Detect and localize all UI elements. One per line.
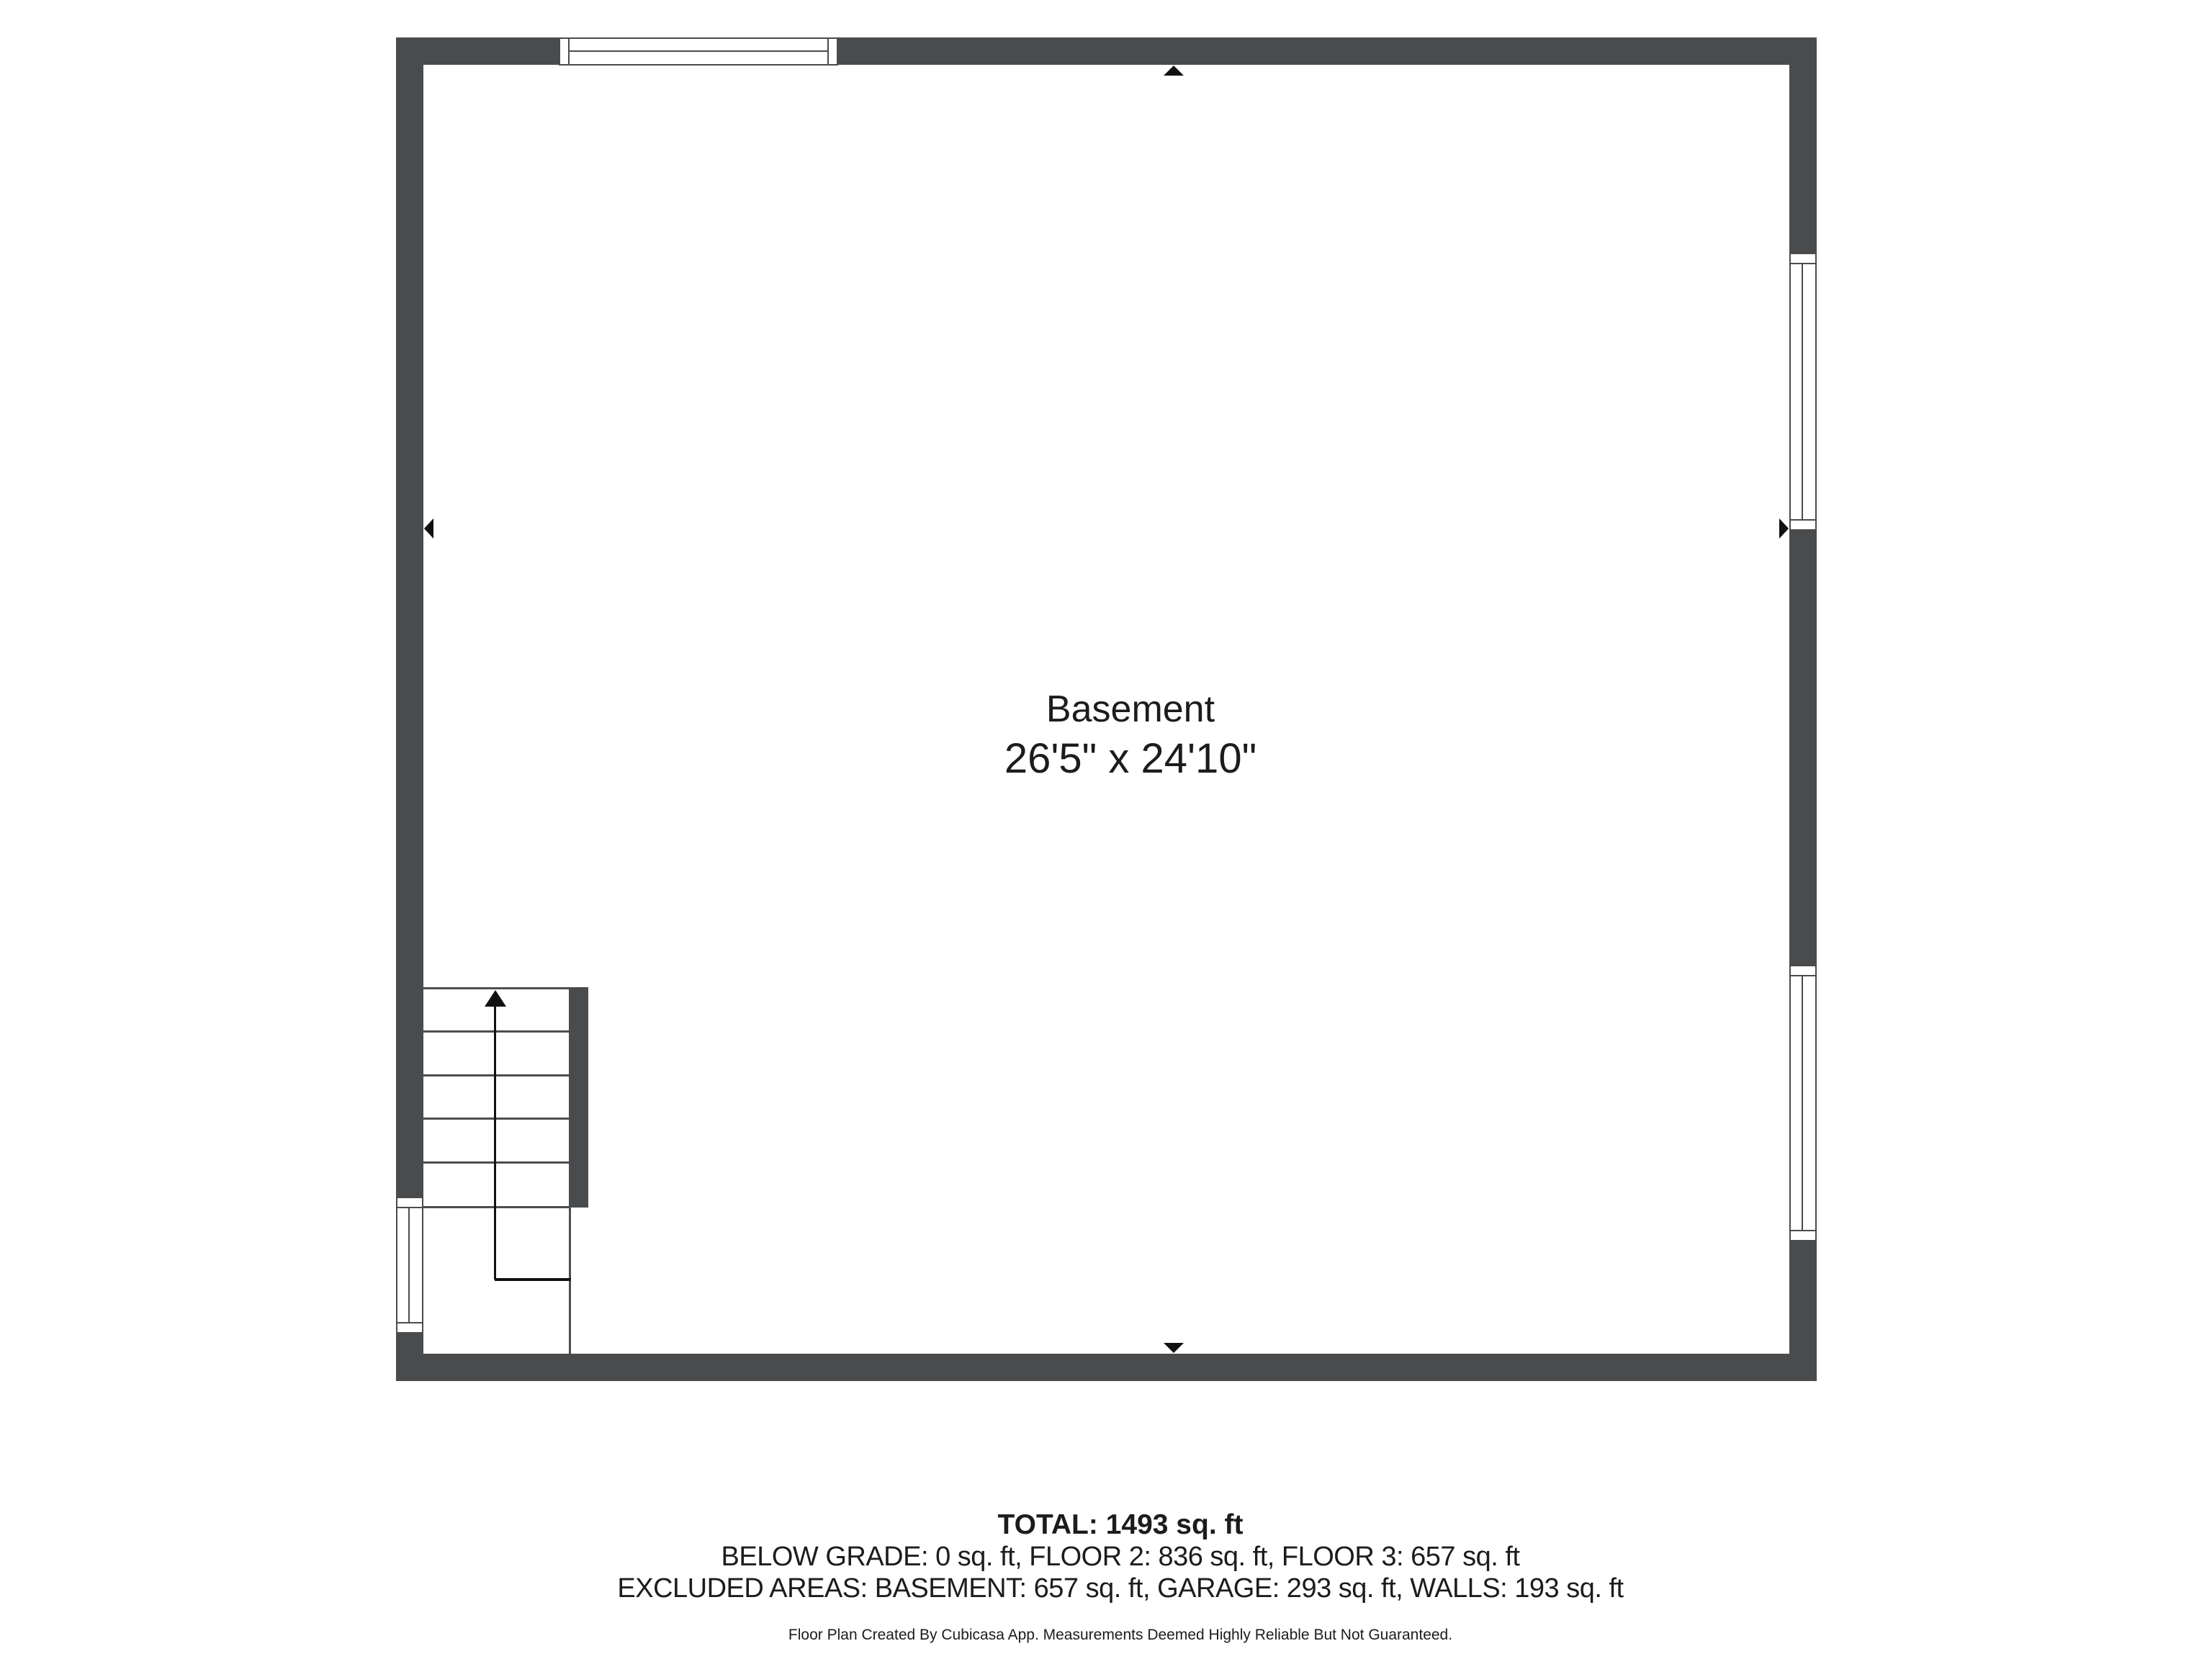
wall-marker-right-icon [1779, 518, 1789, 539]
wall-marker-bottom-icon [1164, 1343, 1184, 1353]
window-frame-line [1791, 519, 1815, 521]
stair-tread-line [422, 1118, 570, 1120]
window-frame-line [1791, 263, 1815, 264]
window-frame-line [1791, 1230, 1815, 1231]
excluded-areas-text: EXCLUDED AREAS: BASEMENT: 657 sq. ft, GA… [29, 1573, 2212, 1604]
wall-bottom [396, 1354, 1817, 1381]
window-top-wall [559, 37, 838, 66]
window-frame-line [1791, 975, 1815, 976]
total-area-text: TOTAL: 1493 sq. ft [29, 1509, 2212, 1541]
stair-tread-line [422, 987, 570, 989]
window-left-wall [396, 1197, 423, 1334]
room-name: Basement [842, 687, 1419, 732]
stair-walking-line [494, 994, 496, 1280]
floor-areas-text: BELOW GRADE: 0 sq. ft, FLOOR 2: 836 sq. … [29, 1541, 2212, 1573]
area-summary: TOTAL: 1493 sq. ft BELOW GRADE: 0 sq. ft… [0, 1509, 2212, 1645]
room-label-block: Basement 26'5" x 24'10" [842, 687, 1419, 786]
window-frame-line [827, 39, 829, 64]
stair-tread-line [422, 1206, 570, 1208]
window-center-line [570, 50, 827, 52]
window-right-wall-lower [1789, 965, 1817, 1241]
window-frame-line [397, 1322, 422, 1323]
room-dimensions: 26'5" x 24'10" [842, 732, 1419, 786]
window-frame-line [397, 1207, 422, 1208]
wall-marker-left-icon [424, 518, 433, 539]
disclaimer-text: Floor Plan Created By Cubicasa App. Meas… [29, 1626, 2212, 1645]
wall-left [396, 37, 423, 1381]
window-center-line [408, 1208, 410, 1322]
window-center-line [1802, 264, 1803, 519]
stair-interior-wall [569, 987, 588, 1208]
window-center-line [1802, 976, 1803, 1230]
window-right-wall-upper [1789, 253, 1817, 531]
stair-landing-edge [495, 1278, 571, 1281]
stair-tread-line [422, 1161, 570, 1164]
stair-tread-line [422, 1074, 570, 1076]
wall-marker-top-icon [1164, 66, 1184, 76]
stair-tread-line [422, 1030, 570, 1033]
stair-up-arrow-icon [485, 990, 506, 1007]
floor-plan-page: Basement 26'5" x 24'10" TOTAL: 1493 sq. … [0, 0, 2212, 1659]
